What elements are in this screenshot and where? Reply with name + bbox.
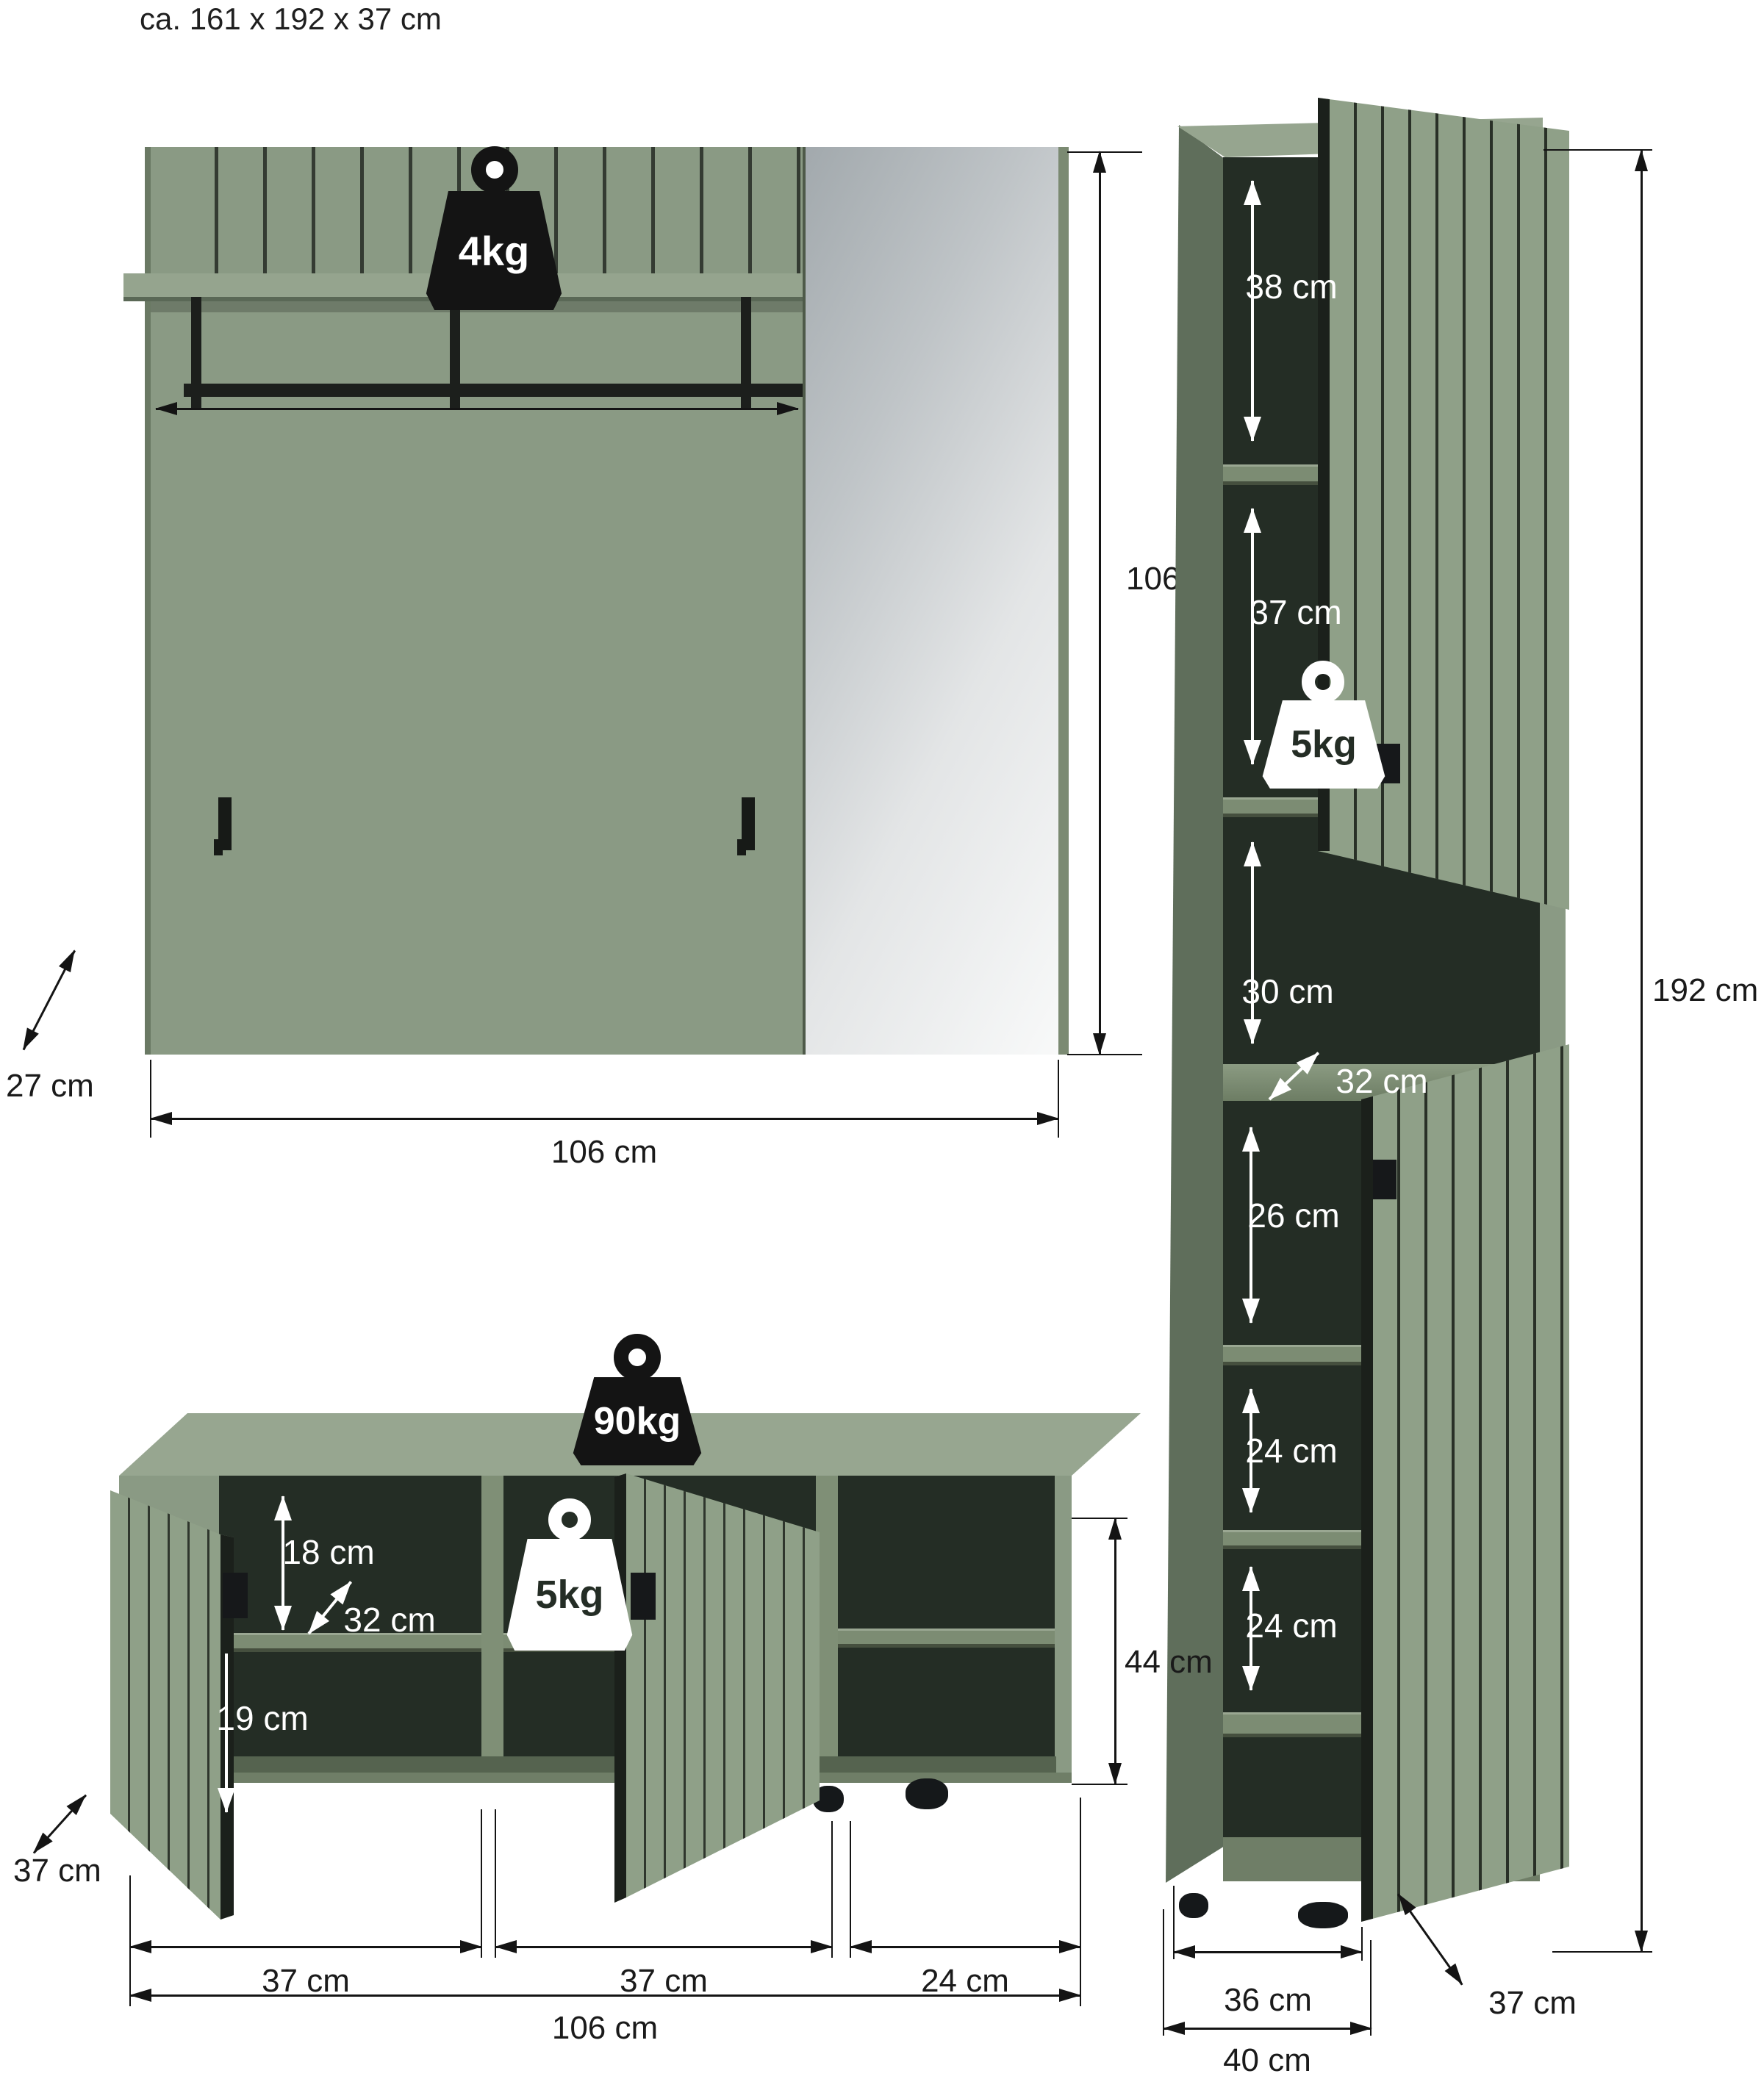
ext-line	[481, 1809, 482, 1958]
weight-5kg-column-label: 5kg	[1291, 722, 1357, 766]
comp-38-label: 38 cm	[1245, 267, 1337, 306]
comp-30-arrow	[1251, 842, 1254, 1044]
niche-depth-label: 32 cm	[1335, 1061, 1427, 1101]
ext-line	[495, 1809, 496, 1958]
column-height-label: 192 cm	[1652, 972, 1758, 1009]
comp-30-label: 30 cm	[1241, 972, 1333, 1011]
bench-middle-door-slats	[626, 1472, 820, 1905]
column-inner-width-label: 36 cm	[1224, 1982, 1312, 2019]
column-lower-door-slats	[1373, 1044, 1569, 1922]
comp-38-arrow	[1251, 181, 1254, 441]
bench-total-width-arrow	[130, 1994, 1080, 1997]
bench-section3-arrow	[850, 1946, 1080, 1948]
column-inner-width-arrow	[1174, 1951, 1362, 1953]
weight-5kg-column-icon: 5kg	[1261, 700, 1386, 789]
panel-width-arrow	[151, 1118, 1058, 1120]
bench-depth-label: 37 cm	[13, 1853, 101, 1889]
column-outer-width-label: 40 cm	[1223, 2042, 1311, 2079]
bench-middle-door-edge	[614, 1472, 626, 1905]
ext-line	[1058, 1060, 1059, 1138]
weight-90kg-icon: 90kg	[572, 1377, 703, 1465]
coat-hook-left-nub	[214, 839, 223, 855]
weight-ring-5kg-column-icon	[1302, 661, 1344, 703]
bench-section2-arrow	[495, 1946, 832, 1948]
coat-hook-right-nub	[737, 839, 746, 855]
bench-middle-door	[614, 1472, 820, 1905]
bench-left-door-handle	[223, 1573, 248, 1618]
bench-height-label: 44 cm	[1125, 1644, 1213, 1681]
column-outer-width-arrow	[1164, 2028, 1372, 2030]
mirror	[806, 147, 1058, 1055]
bench-left-door	[110, 1490, 234, 1927]
column-upper-door	[1318, 98, 1569, 913]
weight-ring-5kg-bench-icon	[548, 1498, 591, 1541]
comp-24b-label: 24 cm	[1245, 1606, 1337, 1645]
column-side-face	[1166, 125, 1225, 1883]
bench-depth-inner-label: 32 cm	[343, 1600, 435, 1640]
column-height-arrow	[1641, 150, 1643, 1952]
panel-width-label: 106 cm	[551, 1134, 657, 1171]
panel-right-sliver	[1058, 147, 1069, 1055]
column-lower-door-edge	[1361, 1094, 1373, 1922]
column-foot-left	[1179, 1893, 1208, 1918]
weight-ring-4kg-icon	[471, 146, 518, 193]
panel-depth-arrow	[23, 950, 76, 1050]
weight-4kg-icon: 4kg	[425, 191, 563, 310]
panel-height-arrow	[1099, 151, 1101, 1055]
bench-right-wall	[1055, 1476, 1072, 1777]
ext-line	[150, 1060, 151, 1138]
column-depth-label: 37 cm	[1488, 1985, 1577, 2022]
comp-37-label: 37 cm	[1249, 592, 1341, 632]
bench-middle-door-handle	[631, 1573, 656, 1620]
bench-height-arrow	[1114, 1518, 1116, 1784]
bench-depth-arrow	[33, 1795, 87, 1854]
bench-foot-right	[906, 1778, 948, 1809]
comp-24a-label: 24 cm	[1245, 1431, 1337, 1471]
weight-ring-90kg-icon	[614, 1334, 661, 1381]
ext-line	[831, 1821, 833, 1958]
bench-section1-arrow	[130, 1946, 481, 1948]
column-depth-arrow	[1397, 1894, 1463, 1986]
bench-19-label: 19 cm	[216, 1698, 308, 1738]
ext-line	[1080, 1798, 1081, 2006]
column-lower-door-handle	[1373, 1160, 1396, 1199]
weight-4kg-label: 4kg	[459, 227, 530, 275]
weight-5kg-bench-icon: 5kg	[506, 1539, 634, 1651]
page-title: ca. 161 x 192 x 37 cm	[140, 1, 442, 37]
bench-left-door-slats	[110, 1490, 220, 1927]
ext-line	[1163, 1909, 1164, 2036]
ext-line	[850, 1821, 851, 1958]
bench-shelf-right	[838, 1629, 1055, 1648]
bench-total-width-label: 106 cm	[552, 2010, 658, 2047]
rail-width-arrow	[156, 408, 798, 410]
comp-26-label: 26 cm	[1247, 1196, 1339, 1235]
coat-rail-bar	[184, 384, 816, 397]
weight-90kg-label: 90kg	[594, 1399, 681, 1443]
panel-depth-label: 27 cm	[6, 1068, 94, 1105]
bench-18-label: 18 cm	[282, 1532, 374, 1572]
bench-divider-left	[481, 1476, 503, 1775]
weight-5kg-bench-label: 5kg	[535, 1572, 603, 1617]
comp-37-arrow	[1251, 509, 1254, 764]
column-foot-right	[1298, 1902, 1348, 1928]
